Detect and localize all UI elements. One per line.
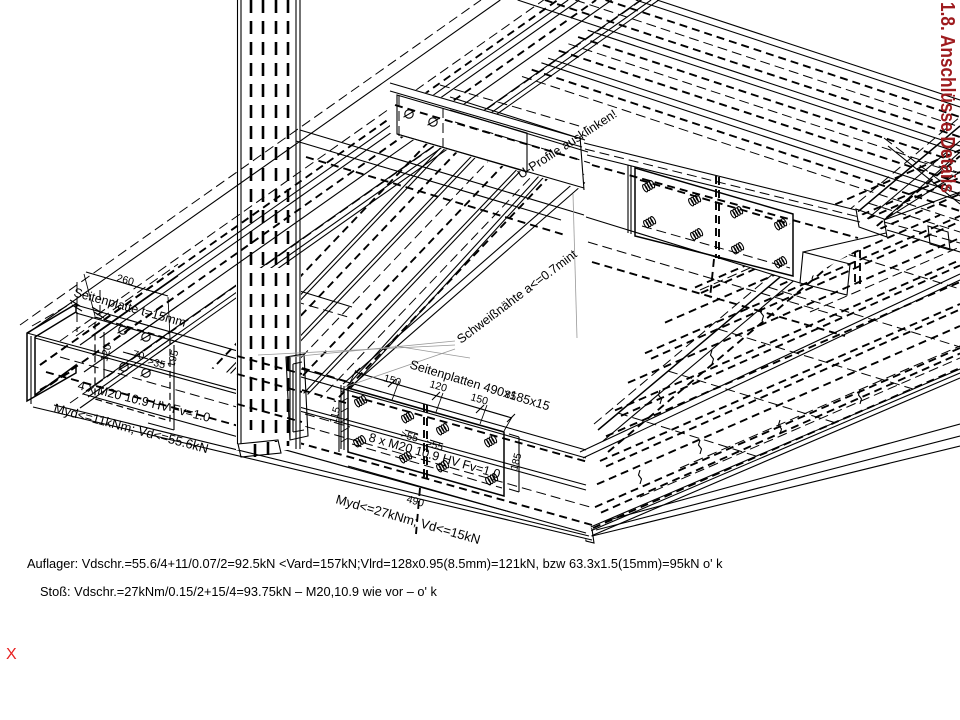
- svg-text:Stoß: Vdschr.=27kNm/0.15/2+15/: Stoß: Vdschr.=27kNm/0.15/2+15/4=93.75kN …: [40, 584, 437, 599]
- svg-text:Auflager: Vdschr.=55.6/4+11/0.: Auflager: Vdschr.=55.6/4+11/0.07/2=92.5k…: [27, 556, 723, 571]
- svg-text:X: X: [6, 646, 17, 663]
- svg-text:1.8. Anschlüsse Details: 1.8. Anschlüsse Details: [936, 2, 958, 193]
